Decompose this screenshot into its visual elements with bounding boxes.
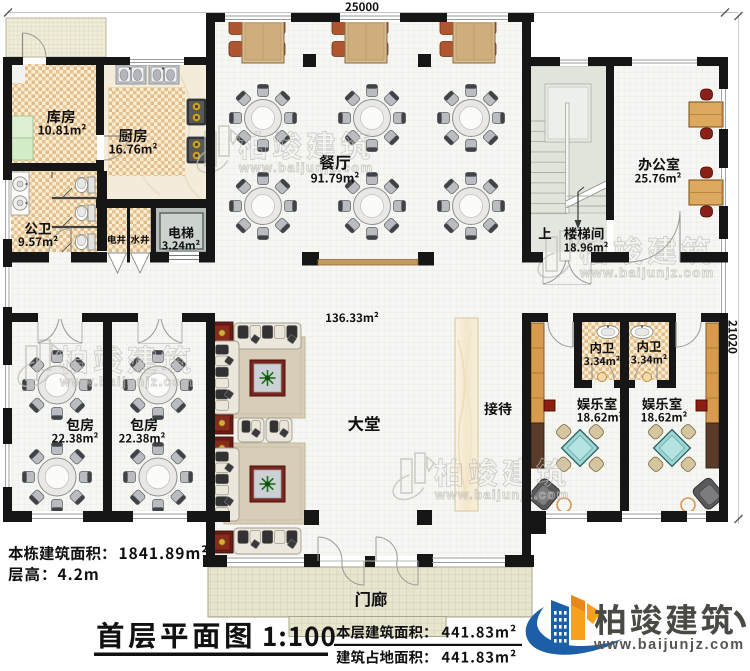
svg-text:www.baijunjz.com: www.baijunjz.com	[579, 265, 715, 280]
svg-text:www.baijunjz.com: www.baijunjz.com	[238, 160, 374, 175]
svg-text:www.baijunjz.com: www.baijunjz.com	[59, 374, 195, 389]
svg-text:www.baijunjz.com: www.baijunjz.com	[434, 487, 570, 502]
svg-text:www.baijunjz.com: www.baijunjz.com	[593, 637, 745, 653]
